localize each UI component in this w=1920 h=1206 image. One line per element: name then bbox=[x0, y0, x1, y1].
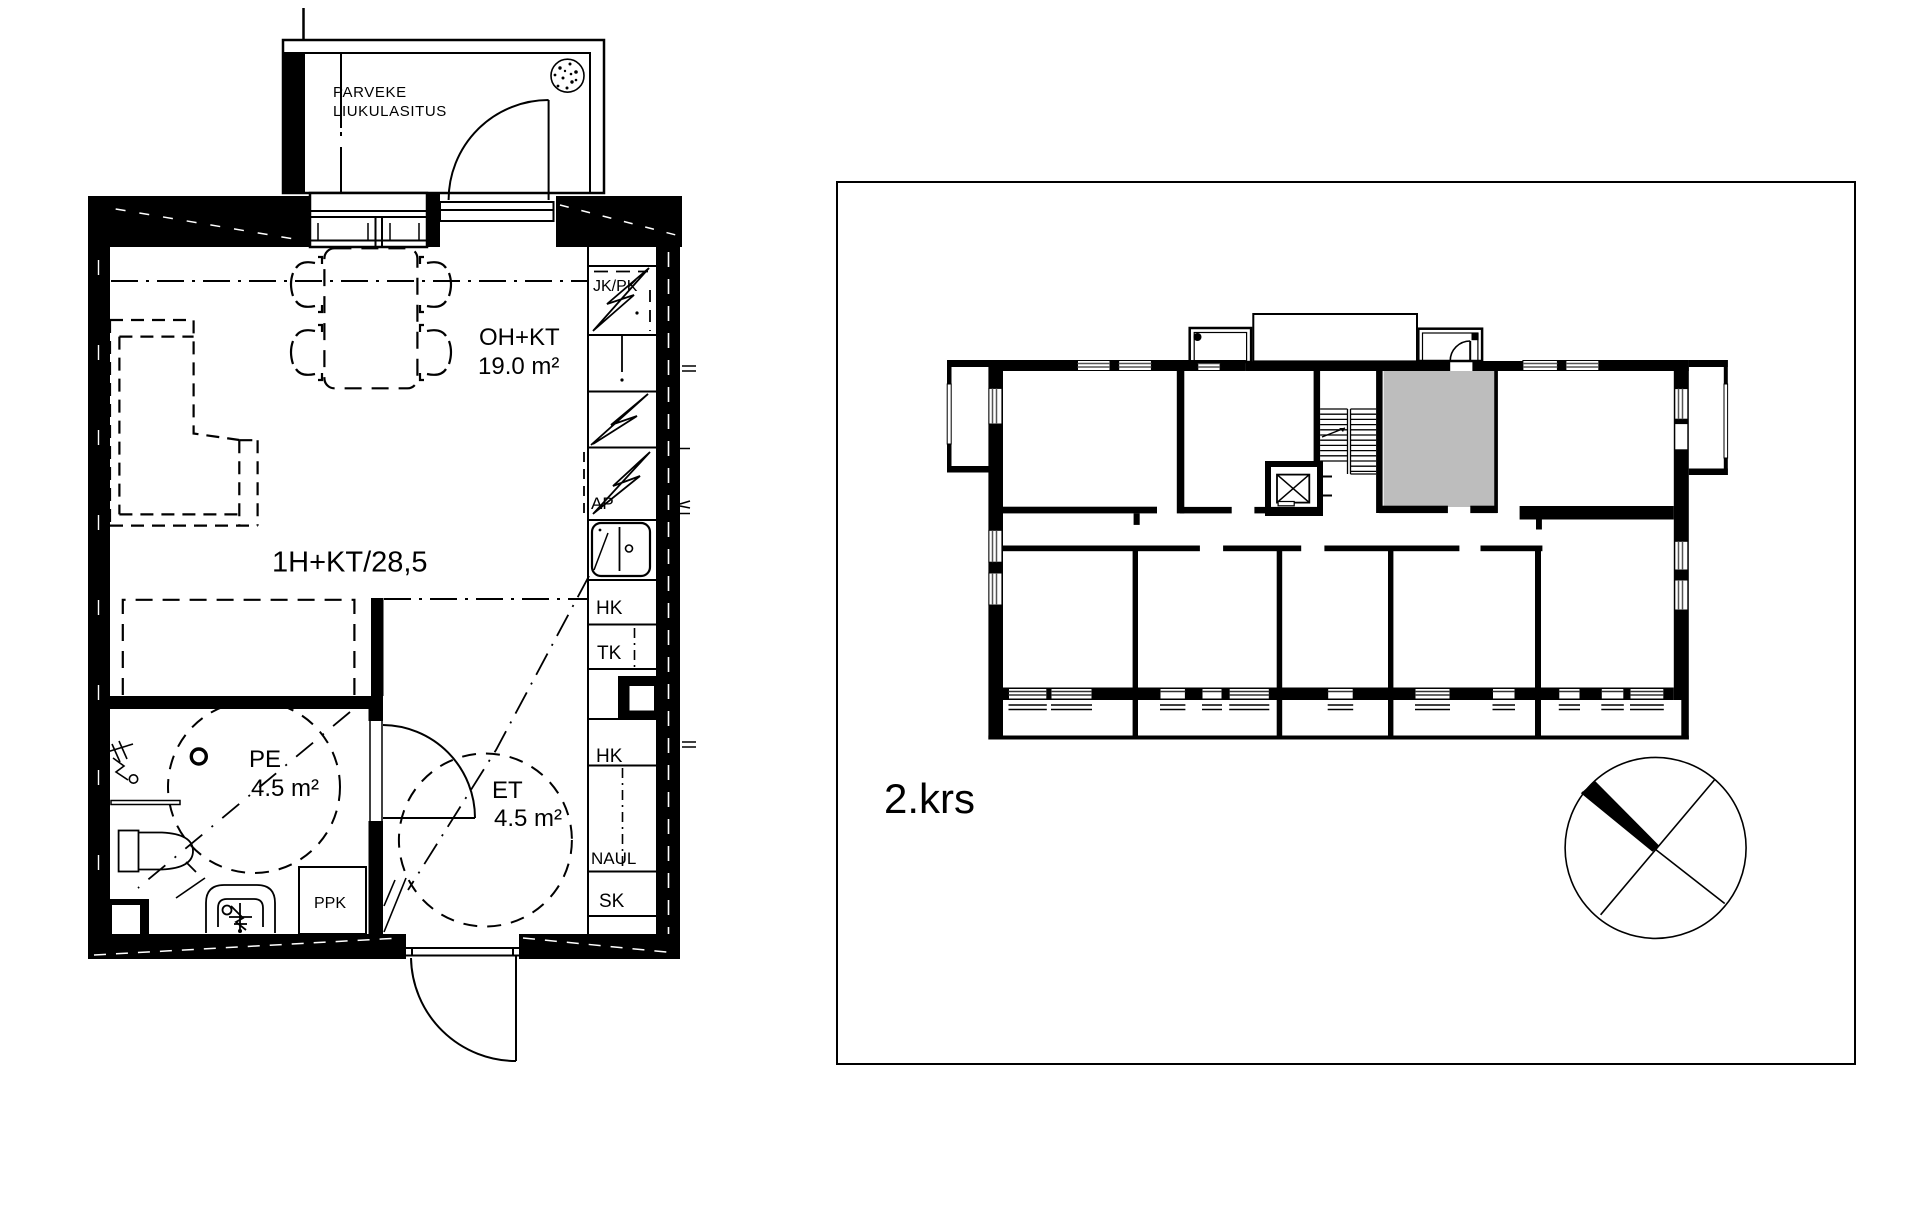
svg-text:AP: AP bbox=[591, 494, 614, 513]
svg-text:NAUL: NAUL bbox=[591, 849, 636, 868]
svg-text:PARVEKE: PARVEKE bbox=[333, 84, 407, 101]
svg-text:19.0 m²: 19.0 m² bbox=[478, 353, 559, 380]
svg-text:HK: HK bbox=[596, 598, 623, 619]
svg-text:SK: SK bbox=[599, 891, 625, 912]
svg-text:PE: PE bbox=[249, 746, 281, 773]
svg-text:4.5 m²: 4.5 m² bbox=[494, 805, 562, 832]
svg-text:OH+KT: OH+KT bbox=[479, 324, 560, 351]
svg-text:1H+KT/28,5: 1H+KT/28,5 bbox=[272, 547, 428, 579]
svg-text:2.krs: 2.krs bbox=[884, 775, 975, 822]
svg-text:PPK: PPK bbox=[314, 895, 346, 912]
svg-text:LIUKULASITUS: LIUKULASITUS bbox=[333, 103, 447, 120]
svg-text:JK/PK: JK/PK bbox=[593, 278, 638, 295]
svg-text:TK: TK bbox=[597, 643, 622, 664]
svg-text:ET: ET bbox=[492, 777, 523, 804]
svg-text:4.5 m²: 4.5 m² bbox=[251, 775, 319, 802]
svg-text:HK: HK bbox=[596, 746, 623, 767]
